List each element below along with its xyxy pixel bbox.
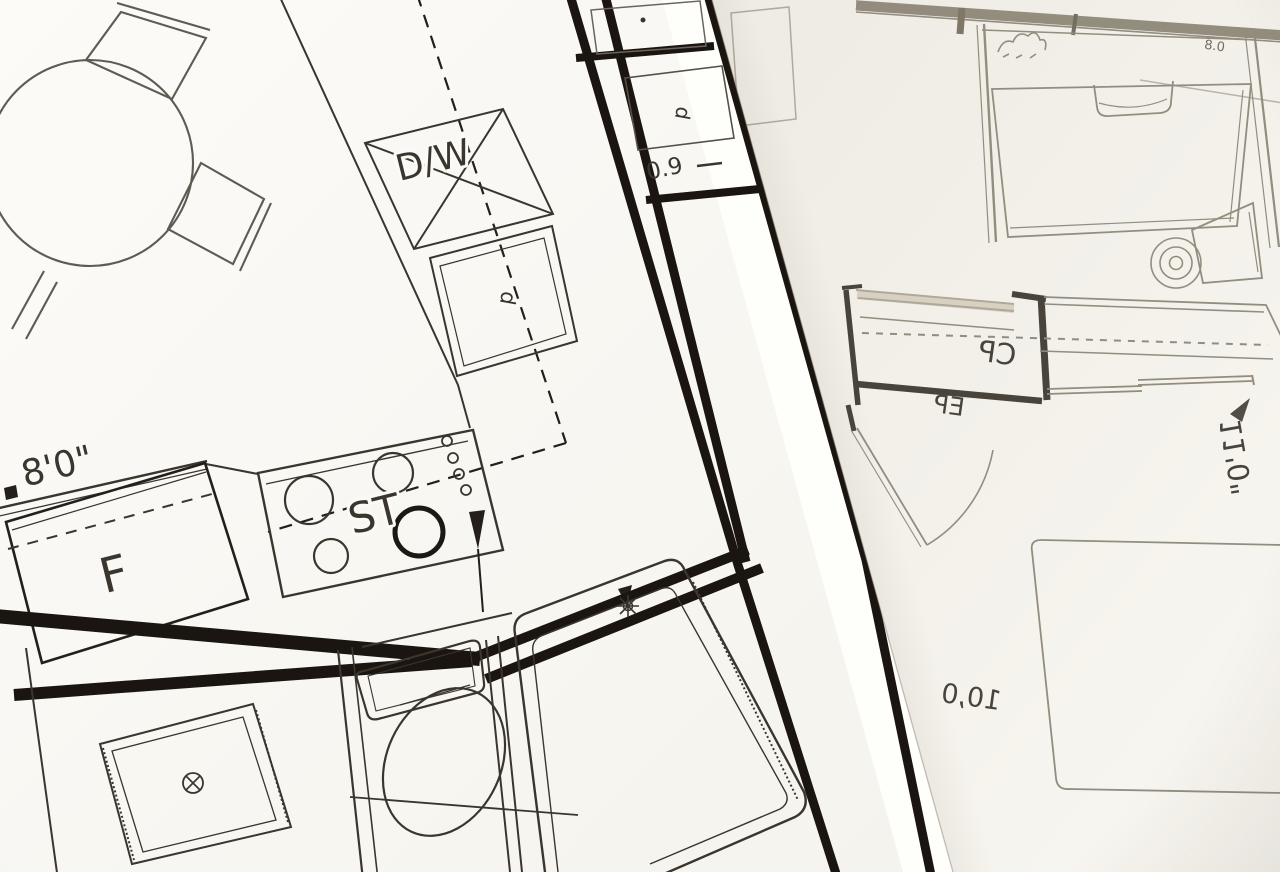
floor-plan-canvas: 0.8 [0,0,1280,872]
photo-vignette [0,0,1280,872]
floor-plan-photo: 0.8 [0,0,1280,872]
